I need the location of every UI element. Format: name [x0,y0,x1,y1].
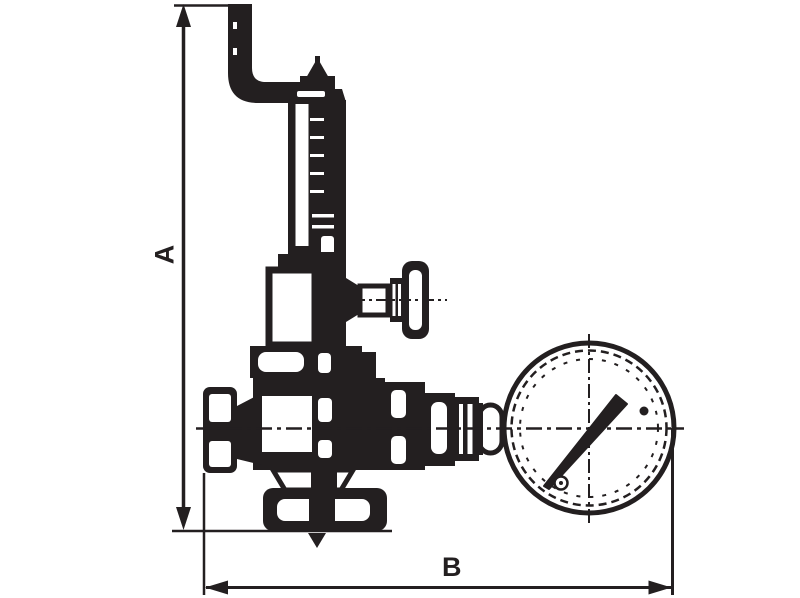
exhaust-pipe [228,4,312,103]
spring-housing [269,252,346,352]
technical-drawing: A B [0,0,800,598]
arrow-right-icon [649,581,672,595]
valve-body [203,378,387,548]
arrow-left-icon [205,581,228,595]
arrow-up-icon [176,4,191,27]
valve-drawing-canvas [0,0,800,598]
adjusting-screw [289,56,346,102]
gauge-fitting [385,382,516,470]
arrow-down-icon [176,507,191,530]
gauge-dot-mark [640,407,649,416]
side-handwheel [330,261,447,339]
flow-arrow-down-icon [308,533,326,548]
dimension-b-label: B [442,554,462,581]
body-flange [250,346,376,378]
dimension-a-label: A [151,245,178,265]
spring-bonnet [288,100,346,260]
